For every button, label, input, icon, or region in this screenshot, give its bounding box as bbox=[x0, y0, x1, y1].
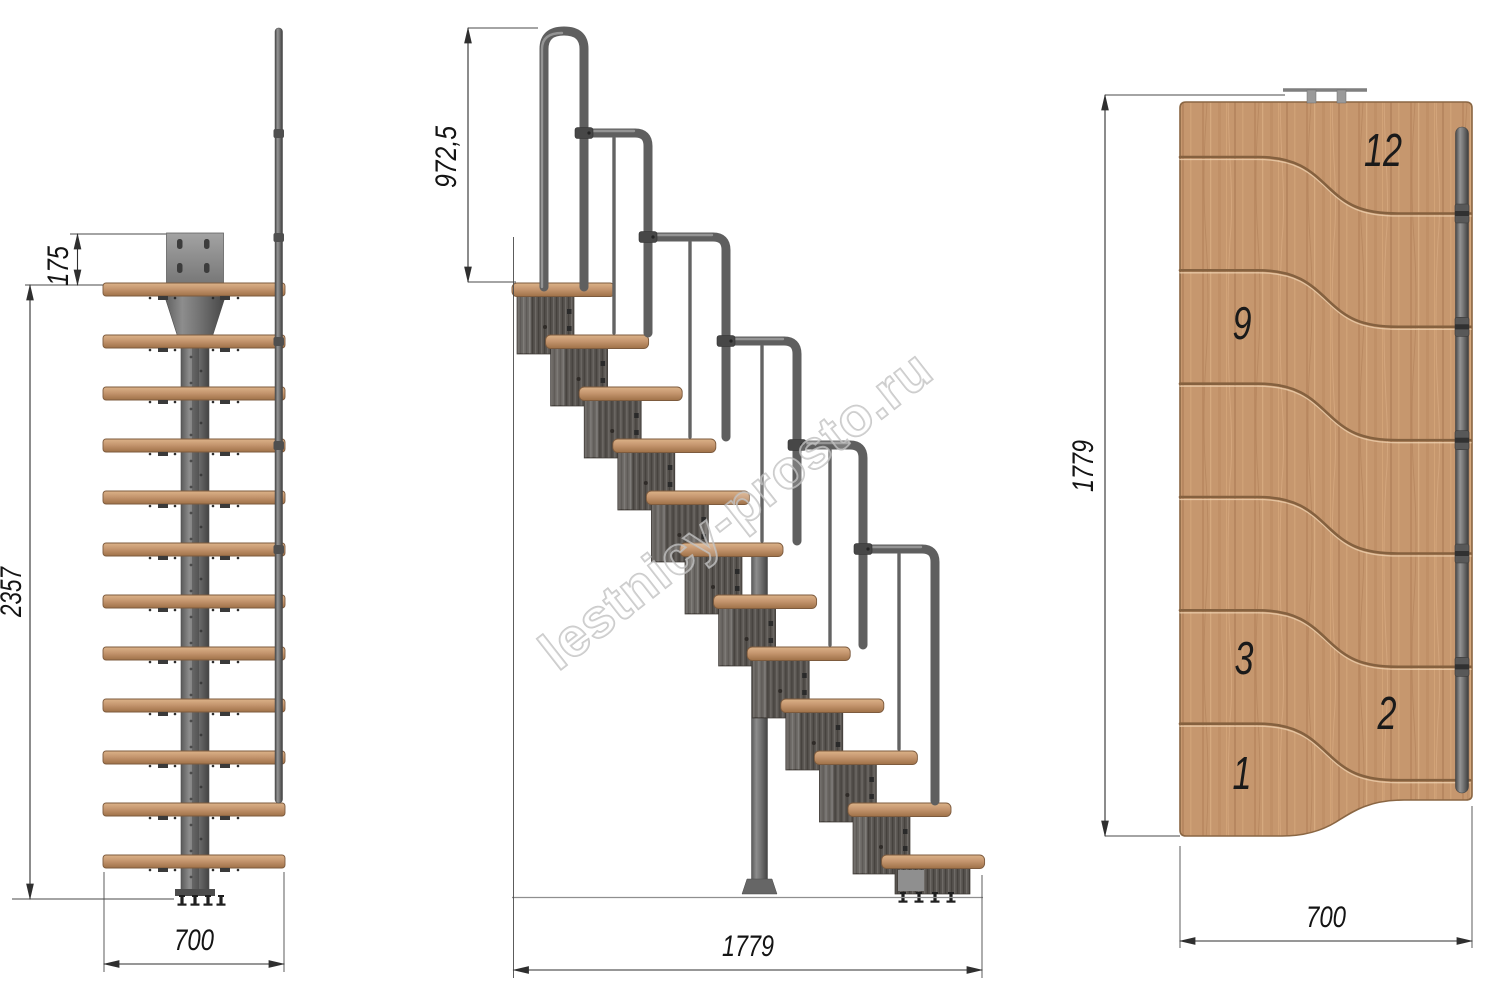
tread-side bbox=[747, 647, 850, 661]
tread-side bbox=[512, 283, 615, 297]
front-mounting-plate bbox=[167, 233, 224, 285]
plan-step-label-3: 3 bbox=[1235, 632, 1254, 684]
plan-dim-total-run-label: 1779 bbox=[1067, 440, 1100, 492]
front-dim-width-label: 700 bbox=[174, 924, 214, 957]
tread-side bbox=[882, 855, 985, 869]
plan-step-label-1: 1 bbox=[1233, 747, 1252, 799]
plan-step-label-2: 2 bbox=[1377, 687, 1397, 739]
tread-side bbox=[814, 751, 917, 765]
plan-dim-width-label: 700 bbox=[1306, 901, 1346, 934]
plan-handrail bbox=[1455, 127, 1469, 793]
front-dim-total-height-label: 2357 bbox=[0, 566, 28, 618]
tread-side bbox=[613, 439, 716, 453]
tread-side bbox=[781, 699, 884, 713]
tread-side bbox=[714, 595, 817, 609]
side-dim-handrail-height-label: 972,5 bbox=[430, 126, 463, 188]
plan-top-bracket bbox=[1283, 90, 1367, 103]
front-dim-plate-offset: 175 bbox=[25, 234, 166, 286]
handrail-top-loop bbox=[542, 31, 584, 287]
side-dim-total-run-label: 1779 bbox=[722, 930, 774, 963]
front-handrail-post bbox=[274, 28, 285, 803]
handrail-section-1 bbox=[588, 131, 648, 333]
plan-step-label-9: 9 bbox=[1233, 297, 1252, 349]
staircase-drawing: 175 2357 700 bbox=[0, 0, 1500, 987]
tread-side bbox=[546, 335, 649, 349]
side-dim-handrail-height: 972,5 bbox=[430, 28, 538, 282]
front-base-plate bbox=[175, 889, 226, 906]
plan-view: 12 9 3 2 1 1779 700 bbox=[1067, 90, 1472, 948]
plan-step-label-12: 12 bbox=[1364, 124, 1402, 176]
tread-side bbox=[579, 387, 682, 401]
front-dim-plate-offset-label: 175 bbox=[42, 246, 75, 286]
technical-drawing-page: 175 2357 700 bbox=[0, 0, 1500, 987]
handrail-section-2 bbox=[652, 235, 726, 437]
front-view: 175 2357 700 bbox=[0, 28, 285, 972]
